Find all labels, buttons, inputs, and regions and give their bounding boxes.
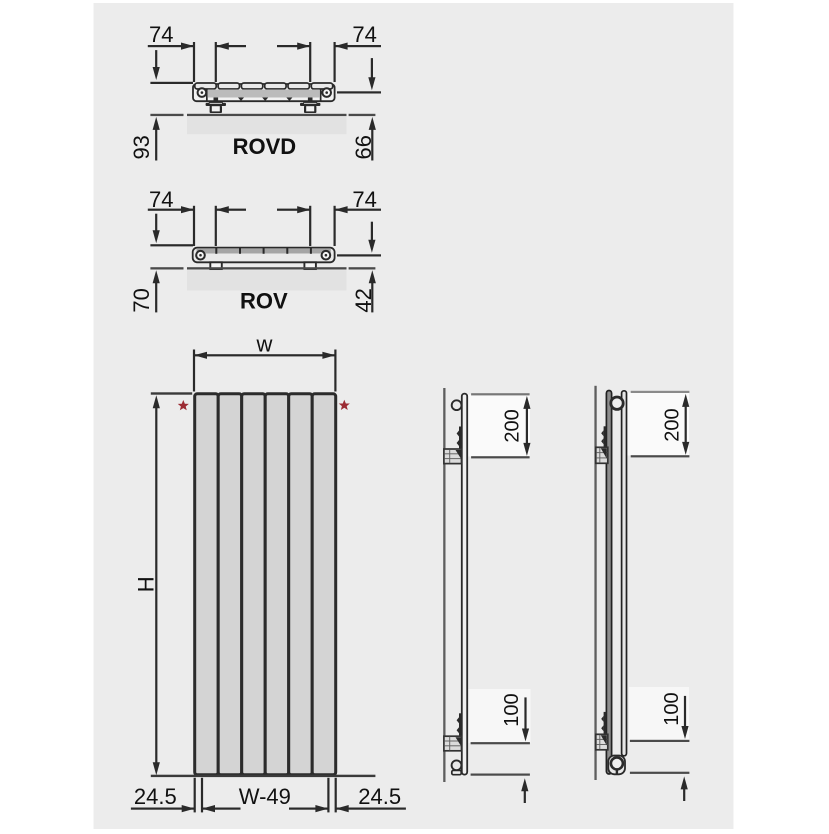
svg-text:70: 70	[129, 288, 154, 312]
svg-text:100: 100	[661, 692, 683, 725]
svg-text:42: 42	[351, 288, 376, 312]
svg-text:100: 100	[501, 693, 523, 726]
svg-text:ROVD: ROVD	[233, 134, 297, 159]
svg-text:24.5: 24.5	[358, 784, 401, 809]
svg-text:200: 200	[661, 408, 683, 441]
svg-text:74: 74	[149, 187, 173, 212]
svg-text:W-49: W-49	[239, 784, 291, 809]
svg-text:200: 200	[501, 409, 523, 442]
svg-text:74: 74	[352, 187, 376, 212]
svg-text:ROV: ROV	[240, 289, 288, 314]
svg-text:74: 74	[352, 22, 376, 47]
svg-text:24.5: 24.5	[134, 784, 177, 809]
svg-text:74: 74	[149, 22, 173, 47]
svg-text:H: H	[133, 576, 158, 592]
svg-text:93: 93	[129, 135, 154, 159]
svg-text:66: 66	[351, 135, 376, 159]
svg-text:w: w	[256, 332, 273, 357]
